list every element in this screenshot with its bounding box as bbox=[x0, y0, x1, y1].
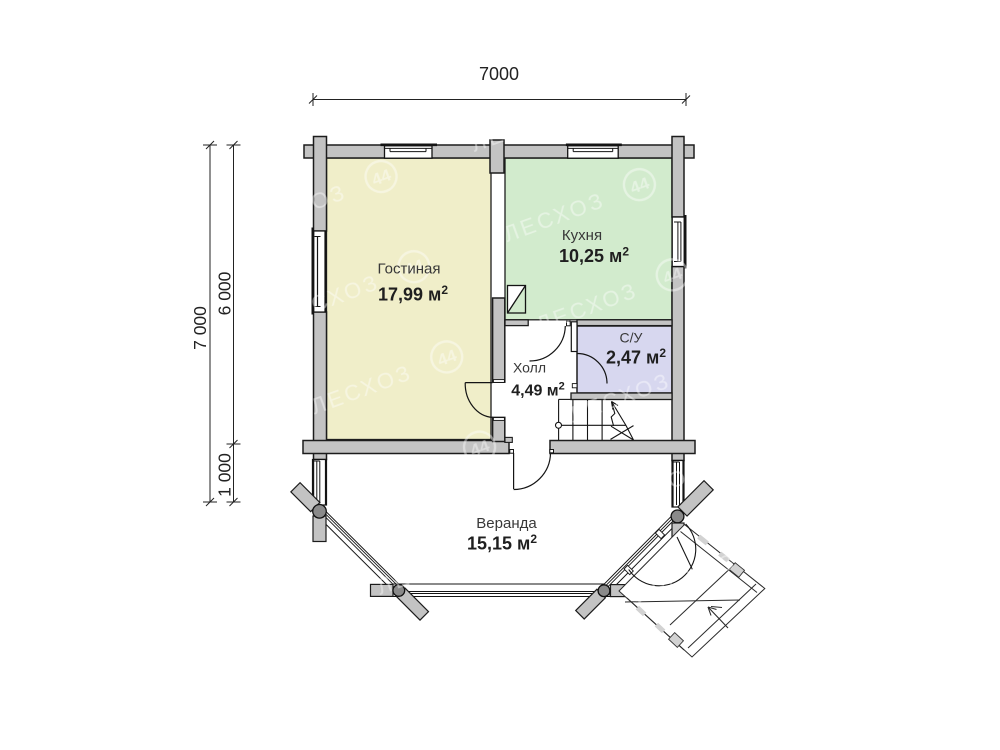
svg-text:4,49 м2: 4,49 м2 bbox=[511, 381, 565, 400]
svg-text:2,47 м2: 2,47 м2 bbox=[606, 346, 666, 368]
svg-text:10,25 м2: 10,25 м2 bbox=[559, 244, 629, 266]
svg-text:15,15 м2: 15,15 м2 bbox=[467, 532, 537, 554]
svg-text:7 000: 7 000 bbox=[190, 306, 210, 350]
svg-text:7000: 7000 bbox=[479, 64, 519, 84]
svg-text:1 000: 1 000 bbox=[215, 453, 235, 497]
svg-text:Холл: Холл bbox=[513, 360, 546, 376]
svg-text:С/У: С/У bbox=[620, 330, 643, 346]
svg-text:17,99 м2: 17,99 м2 bbox=[378, 283, 448, 305]
svg-text:6 000: 6 000 bbox=[215, 271, 235, 315]
svg-text:Веранда: Веранда bbox=[476, 515, 537, 532]
svg-text:Кухня: Кухня bbox=[562, 227, 602, 244]
svg-text:Гостиная: Гостиная bbox=[378, 261, 441, 278]
